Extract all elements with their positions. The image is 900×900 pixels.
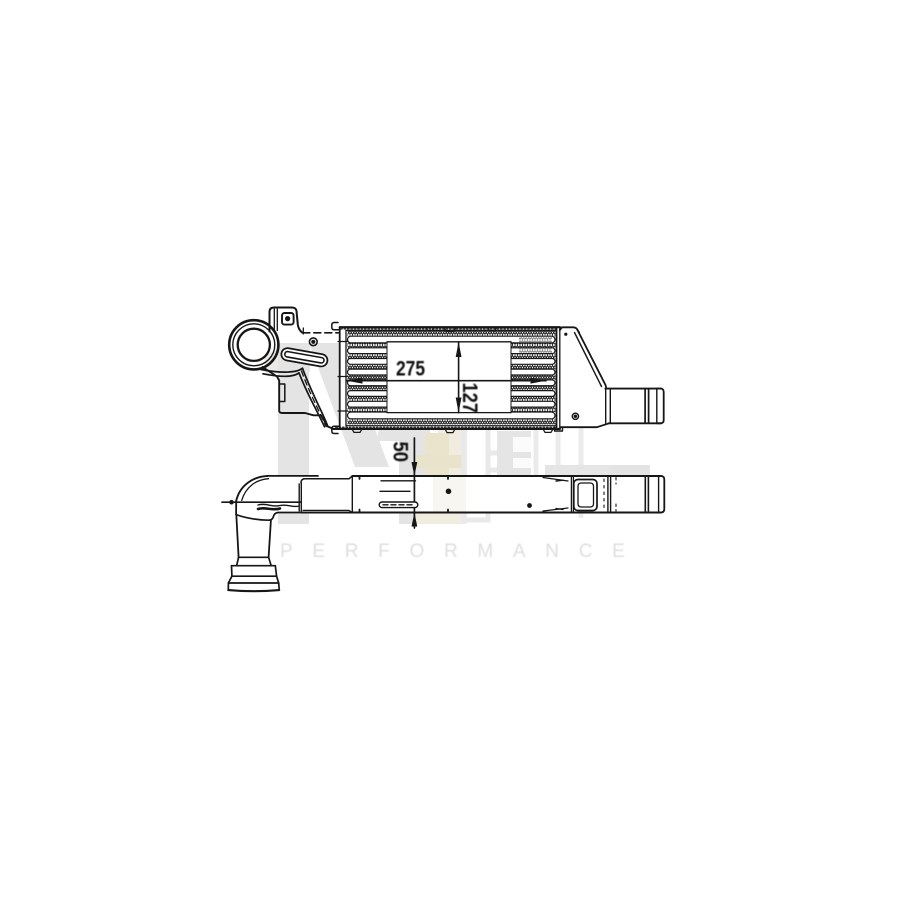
svg-text:50: 50: [389, 442, 412, 463]
svg-text:275: 275: [396, 358, 425, 381]
svg-text:127: 127: [458, 383, 481, 414]
svg-text:PERFORMANCE: PERFORMANCE: [280, 541, 645, 562]
